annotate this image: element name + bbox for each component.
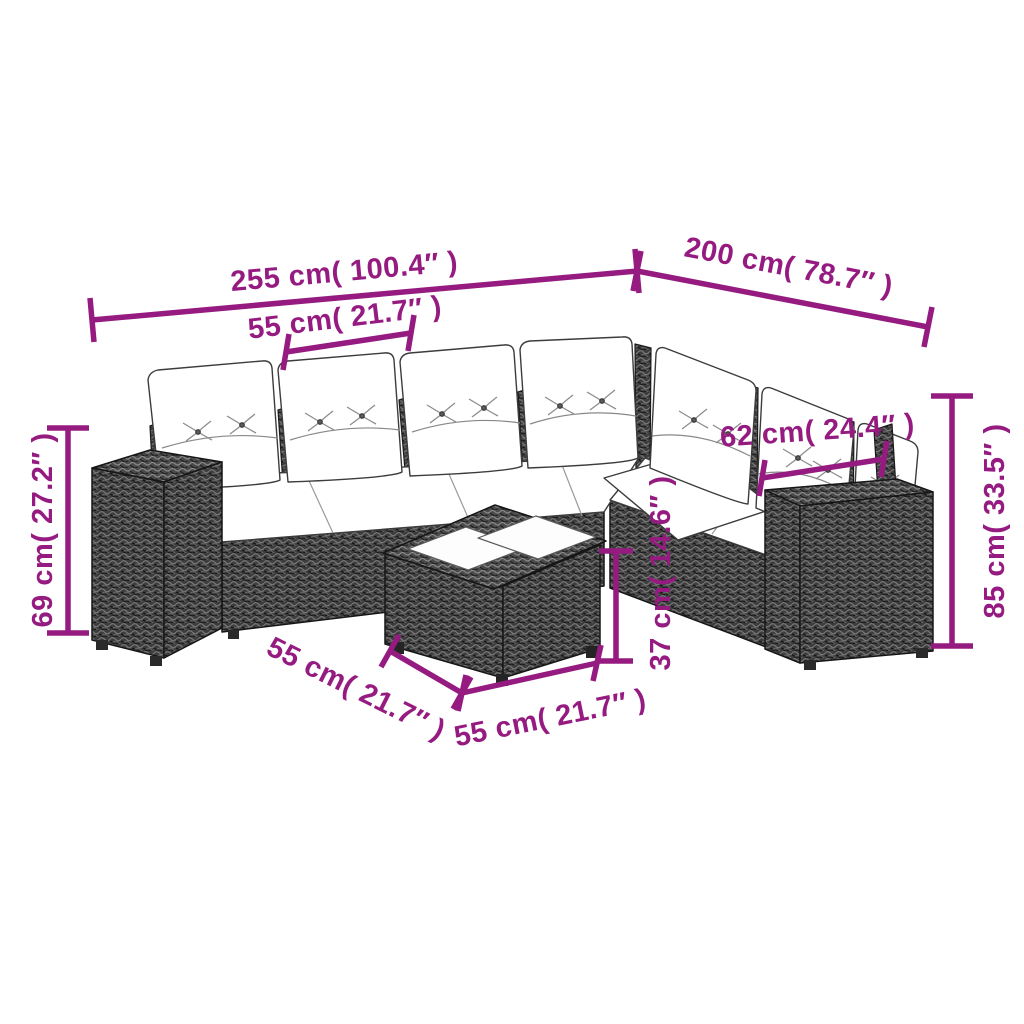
sofa-foot <box>96 640 108 650</box>
dimension-label-table-height: 37 cm( 14.6″ ) <box>645 476 677 671</box>
sofa-foot <box>916 648 928 658</box>
back-cushion <box>400 345 522 476</box>
sofa-foot <box>150 656 162 666</box>
dimension-label-total-height: 85 cm( 33.5″ ) <box>979 424 1011 619</box>
diagram-canvas: 255 cm( 100.4″ ) 200 cm( 78.7″ ) 55 cm( … <box>0 0 1024 1024</box>
sofa-foot <box>804 660 816 670</box>
left-armrest <box>92 450 222 666</box>
product-dimension-diagram: 255 cm( 100.4″ ) 200 cm( 78.7″ ) 55 cm( … <box>0 0 1024 1024</box>
dimension-label-seat-height: 69 cm( 27.2″ ) <box>27 433 59 628</box>
back-cushion <box>278 353 402 482</box>
right-armrest <box>765 479 933 670</box>
back-cushion <box>520 337 638 468</box>
sofa-foot <box>228 630 239 639</box>
